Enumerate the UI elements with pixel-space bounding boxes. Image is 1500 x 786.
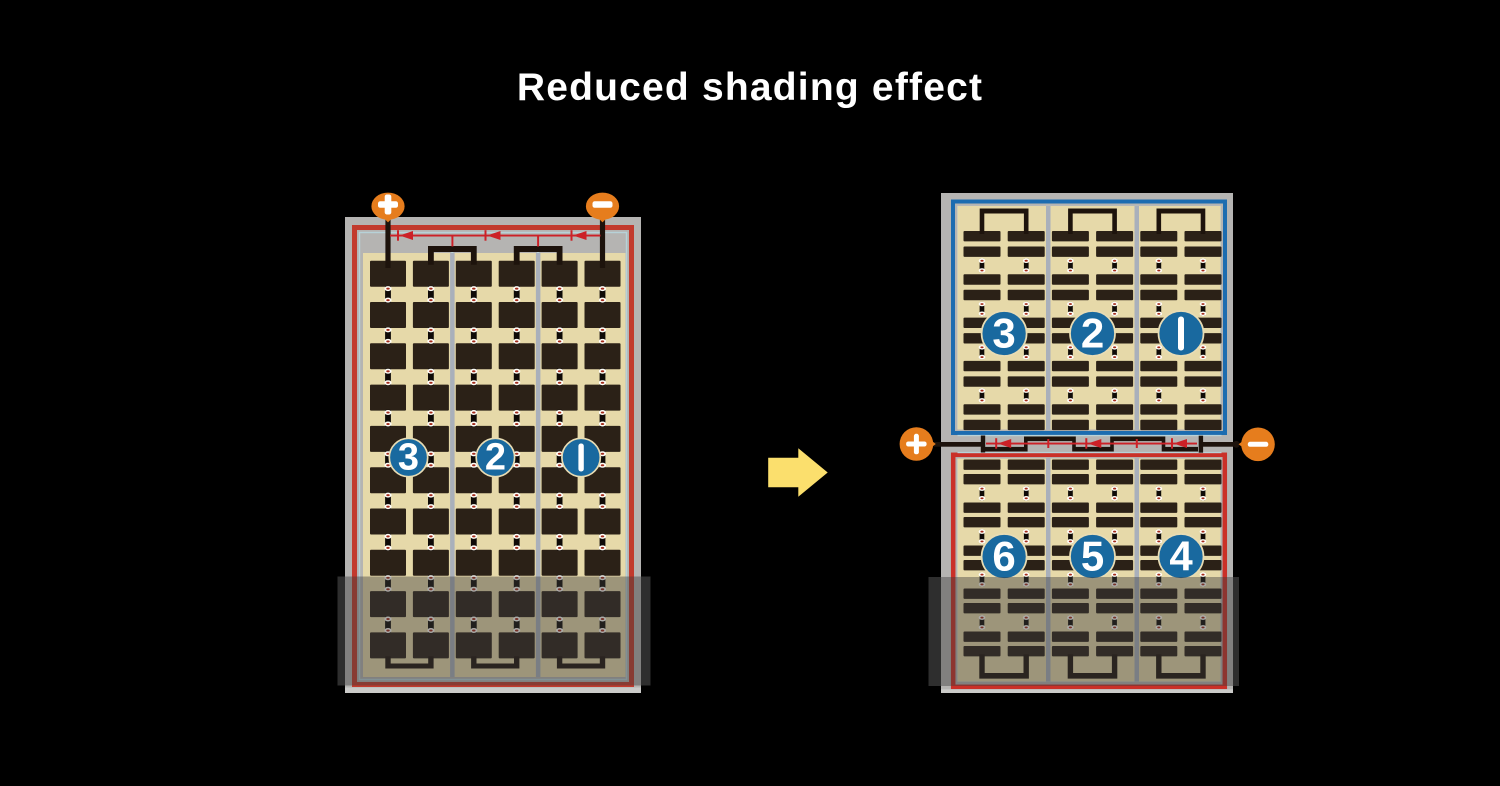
svg-text:2: 2 [1081, 310, 1104, 357]
svg-text:5: 5 [1081, 533, 1104, 580]
svg-text:6: 6 [992, 533, 1015, 580]
svg-text:3: 3 [398, 437, 419, 479]
svg-text:3: 3 [992, 310, 1015, 357]
svg-text:2: 2 [485, 437, 506, 479]
svg-text:4: 4 [1169, 533, 1193, 580]
svg-text:Reduced shading effect: Reduced shading effect [517, 66, 983, 109]
